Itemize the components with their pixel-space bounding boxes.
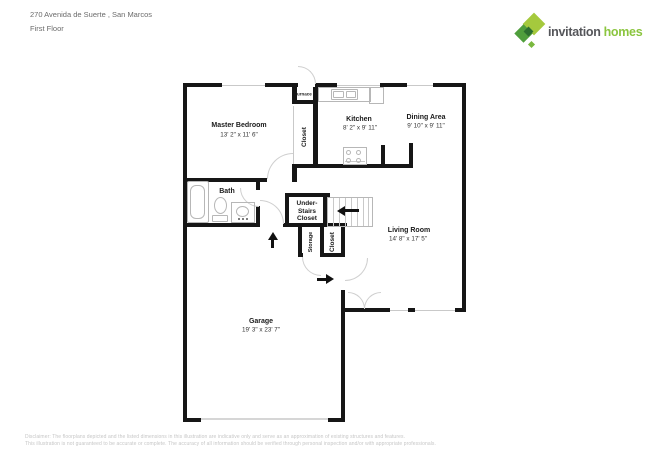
entry-arrow-right-shaft [317,278,326,281]
wall [409,143,413,168]
window-line [415,310,455,311]
room-label-storage: Storage [307,232,315,252]
door-arc [298,66,316,84]
stairs-arrow-left-icon [337,206,345,216]
wall [292,164,385,168]
room-dims-kitchen: 8' 2" x 9' 11" [343,125,377,132]
fixture [356,150,361,155]
door-arc [260,200,284,224]
stairs-arrow-left-shaft [345,209,359,212]
wall [183,223,260,227]
entry-arrow-up-shaft [271,240,274,248]
fixture [346,150,351,155]
fixture [190,185,205,219]
wall [183,418,201,422]
fixture [346,158,351,163]
faucet-dot [238,218,240,220]
floor-plan [0,0,650,460]
fixture [333,91,344,98]
room-label-kitchen: Kitchen [346,116,372,124]
room-label-under-stairs-closet: Under- Stairs Closet [297,200,318,223]
fixture [236,206,249,217]
fixture [327,197,373,227]
wall [408,308,415,312]
door-arc [302,257,321,276]
disclaimer-line-1: Disclaimer: The floorplans depicted and … [25,434,405,440]
window-line [337,85,380,86]
room-dims-living-room: 14' 8" x 17' 5" [389,236,427,243]
wall [462,83,466,312]
entry-arrow-right-icon [326,274,334,284]
room-label-living-room: Living Room [388,227,430,235]
room-label-furnace: Furnace [294,92,312,97]
door-arc [348,292,365,309]
room-label-master-bedroom: Master Bedroom [211,122,266,130]
garage-door-line [201,418,328,420]
fixture [212,215,228,222]
faucet-dot [242,218,244,220]
room-label-garage: Garage [249,318,273,326]
wall [381,145,385,164]
window-line [293,106,294,164]
wall [455,308,466,312]
fixture [369,87,384,104]
fixture [214,197,227,214]
room-label-hall-closet: Closet [301,127,309,147]
entry-arrow-up-icon [268,232,278,240]
wall [183,83,187,422]
fixture [346,91,356,98]
window-line [407,85,433,86]
wall [341,290,345,422]
room-label-bath: Bath [219,188,235,196]
floor-plan-page: 270 Avenida de Suerte , San Marcos First… [0,0,650,460]
room-label-dining-area: Dining Area [406,114,445,122]
window-line [222,85,265,86]
wall [380,83,407,87]
window-line [390,310,408,311]
wall [183,83,222,87]
door-arc [267,153,293,179]
room-dims-dining-area: 9' 10" x 9' 11" [407,123,445,130]
faucet-dot [246,218,248,220]
room-dims-master-bedroom: 13' 2" x 11' 6" [220,132,258,139]
wall [320,253,345,257]
wall [292,100,313,104]
room-label-entry-closet: Closet [329,232,337,252]
fixture [356,158,361,163]
door-arc [345,258,368,281]
door-arc [364,292,381,309]
wall [285,193,289,223]
room-dims-garage: 19' 3" x 23' 7" [242,327,280,334]
disclaimer-line-2: This illustration is not guaranteed to b… [25,441,436,447]
